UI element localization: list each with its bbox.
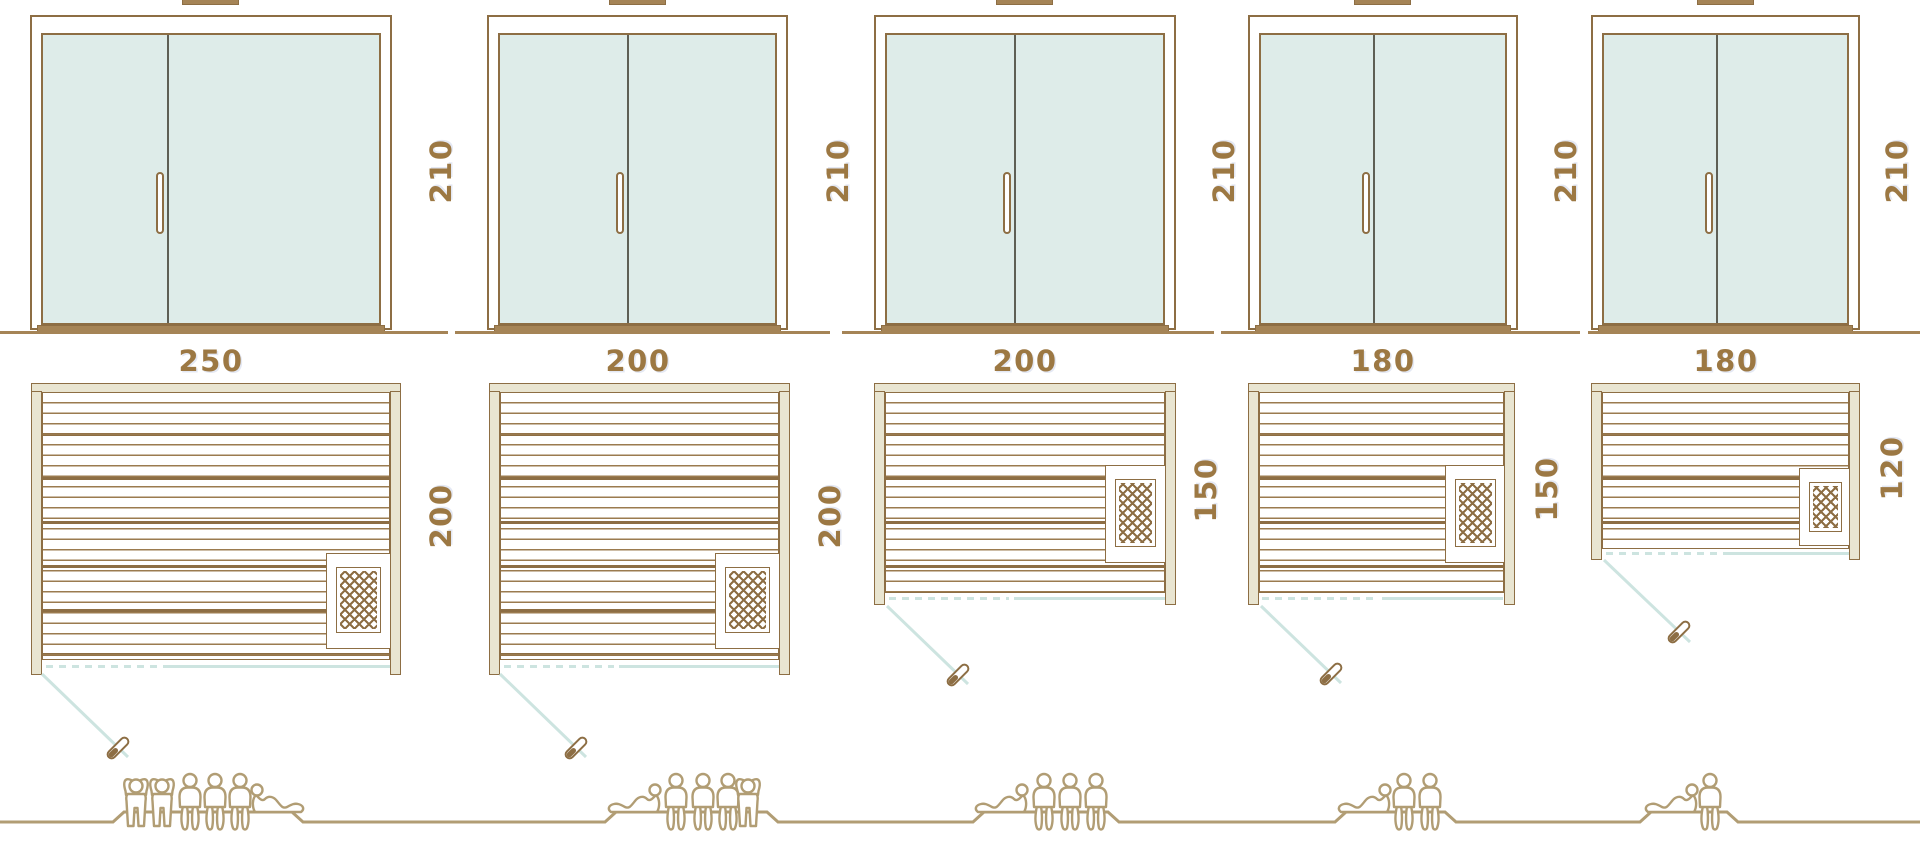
sitting-person-icon	[666, 774, 687, 830]
heater-icon	[1455, 479, 1496, 547]
glass-door-panels	[885, 33, 1165, 325]
door-opening-dashed-line	[1606, 552, 1718, 555]
lying-person-icon	[976, 785, 1028, 813]
width-dimension-label: 200	[568, 344, 708, 378]
lying-person-icon	[609, 785, 661, 813]
sitting-person-icon	[1034, 774, 1055, 830]
door-split-line	[1014, 35, 1016, 323]
height-dimension-label: 210	[822, 121, 854, 221]
roof-vent-icon	[182, 0, 239, 5]
door-opening-line	[1014, 597, 1165, 600]
bench-ground-line	[0, 812, 1920, 822]
heater-icon	[1115, 479, 1156, 547]
door-handle-icon	[1667, 620, 1691, 644]
standing-person-icon	[150, 779, 173, 826]
roof-vent-icon	[609, 0, 666, 5]
capacity-group	[1646, 774, 1721, 830]
plan-left-wall	[1591, 391, 1602, 560]
capacity-figures	[0, 770, 1920, 856]
sitting-person-icon	[230, 774, 251, 830]
capacity-group	[124, 774, 303, 830]
glass-door-panels	[498, 33, 777, 325]
ground-line	[0, 331, 448, 334]
sitting-person-icon	[1700, 774, 1721, 830]
door-opening-dashed-line	[1262, 597, 1377, 600]
sitting-person-icon	[718, 774, 739, 830]
glass-door-panels	[1602, 33, 1849, 325]
plan-left-wall	[874, 391, 885, 605]
door-handle-icon	[946, 663, 970, 687]
heater-bench	[1799, 468, 1850, 546]
depth-dimension-label: 120	[1876, 418, 1908, 518]
plan-left-wall	[1248, 391, 1259, 605]
sitting-person-icon	[180, 774, 201, 830]
door-handle-icon	[1319, 662, 1343, 686]
door-opening-dashed-line	[46, 665, 158, 668]
door-handle-icon	[106, 736, 130, 760]
height-dimension-label: 210	[425, 121, 457, 221]
heater-icon	[1809, 482, 1842, 532]
heater-bench	[1105, 465, 1166, 563]
door-elevation	[1248, 15, 1518, 330]
ground-line	[1221, 331, 1580, 334]
plan-left-wall	[489, 391, 500, 675]
lying-person-icon	[252, 785, 304, 813]
door-split-line	[1373, 35, 1375, 323]
heater-icon	[725, 567, 770, 633]
door-handle-icon	[616, 172, 624, 234]
height-dimension-label: 210	[1881, 121, 1913, 221]
plan-right-wall	[779, 391, 790, 675]
door-opening-dashed-line	[889, 597, 1009, 600]
door-handle-icon	[564, 736, 588, 760]
door-elevation	[874, 15, 1176, 330]
height-dimension-label: 210	[1550, 121, 1582, 221]
heater-bench	[326, 553, 391, 649]
depth-dimension-label: 150	[1531, 439, 1563, 539]
lying-person-icon	[1339, 785, 1391, 813]
sitting-person-icon	[205, 774, 226, 830]
capacity-group	[976, 774, 1107, 830]
door-split-line	[627, 35, 629, 323]
sauna-dimension-diagram: 250 210 200 200 210	[0, 0, 1920, 856]
width-dimension-label: 200	[955, 344, 1095, 378]
ground-line	[455, 331, 830, 334]
capacity-group	[609, 774, 760, 830]
depth-dimension-label: 200	[814, 466, 846, 566]
height-dimension-label: 210	[1208, 121, 1240, 221]
door-split-line	[167, 35, 169, 323]
heater-bench	[1445, 465, 1505, 563]
depth-dimension-label: 150	[1190, 440, 1222, 540]
plan-right-wall	[1849, 391, 1860, 560]
door-handle-icon	[1362, 172, 1370, 234]
roof-vent-icon	[1697, 0, 1754, 5]
door-opening-line	[163, 665, 390, 668]
ground-line	[842, 331, 1214, 334]
door-opening-line	[1723, 552, 1849, 555]
door-opening-dashed-line	[504, 665, 614, 668]
sitting-person-icon	[1086, 774, 1107, 830]
plan-left-wall	[31, 391, 42, 675]
sitting-person-icon	[1420, 774, 1441, 830]
glass-door-panels	[41, 33, 381, 325]
heater-bench	[715, 553, 780, 649]
sitting-person-icon	[693, 774, 714, 830]
lying-person-icon	[1646, 785, 1698, 813]
standing-person-icon	[736, 779, 759, 826]
ground-line	[1588, 331, 1920, 334]
door-handle-icon	[1003, 172, 1011, 234]
door-opening-line	[1382, 597, 1503, 600]
standing-person-icon	[124, 779, 147, 826]
depth-dimension-label: 200	[425, 466, 457, 566]
door-split-line	[1716, 35, 1718, 323]
door-opening-line	[619, 665, 779, 668]
door-handle-icon	[1705, 172, 1713, 234]
sitting-person-icon	[1394, 774, 1415, 830]
door-elevation	[30, 15, 392, 330]
roof-vent-icon	[1354, 0, 1411, 5]
door-elevation	[487, 15, 788, 330]
plan-right-wall	[1504, 391, 1515, 605]
width-dimension-label: 180	[1656, 344, 1796, 378]
plan-right-wall	[1165, 391, 1176, 605]
heater-icon	[336, 567, 381, 633]
door-handle-icon	[156, 172, 164, 234]
glass-door-panels	[1259, 33, 1507, 325]
width-dimension-label: 180	[1313, 344, 1453, 378]
plan-right-wall	[390, 391, 401, 675]
width-dimension-label: 250	[141, 344, 281, 378]
capacity-group	[1339, 774, 1441, 830]
door-elevation	[1591, 15, 1860, 330]
roof-vent-icon	[996, 0, 1053, 5]
sitting-person-icon	[1060, 774, 1081, 830]
